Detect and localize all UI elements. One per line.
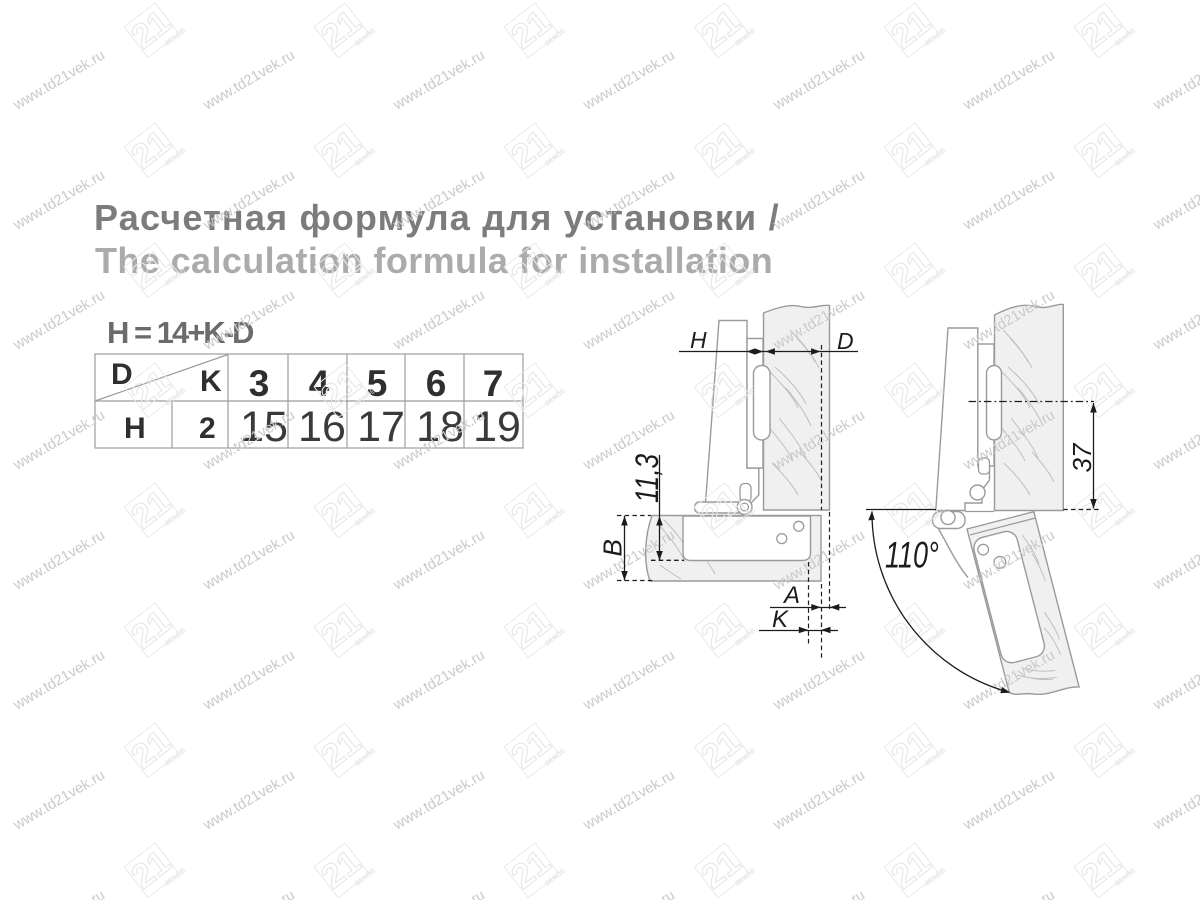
svg-text:K: K	[772, 606, 789, 633]
svg-text:37: 37	[1067, 442, 1097, 472]
svg-text:110°: 110°	[885, 534, 939, 575]
svg-text:H: H	[690, 327, 707, 353]
svg-text:D: D	[837, 328, 854, 354]
svg-text:B: B	[598, 539, 628, 556]
svg-text:11,3: 11,3	[631, 453, 666, 503]
svg-text:A: A	[782, 582, 800, 609]
